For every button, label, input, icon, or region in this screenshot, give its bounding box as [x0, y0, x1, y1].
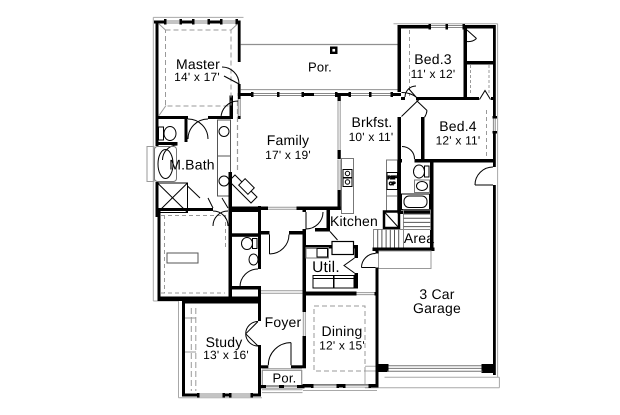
svg-text:Bed.4: Bed.4 [439, 118, 477, 134]
svg-text:11' x 12': 11' x 12' [411, 67, 456, 81]
svg-text:13' x 16': 13' x 16' [203, 348, 249, 362]
svg-text:OP: OP [389, 181, 396, 186]
svg-text:14' x 17': 14' x 17' [174, 70, 220, 84]
svg-text:Por.: Por. [273, 371, 297, 386]
svg-text:Garage: Garage [413, 300, 461, 316]
svg-text:17' x 19': 17' x 19' [265, 148, 311, 162]
svg-text:Util.: Util. [312, 259, 340, 276]
svg-text:Kitchen: Kitchen [330, 213, 378, 229]
svg-text:REF: REF [388, 175, 397, 180]
svg-text:M.Bath: M.Bath [169, 157, 215, 173]
svg-text:Brkfst.: Brkfst. [351, 114, 392, 130]
svg-text:12' x 11': 12' x 11' [436, 134, 481, 148]
svg-text:Bed.3: Bed.3 [414, 51, 452, 67]
svg-text:Por.: Por. [308, 60, 332, 75]
svg-text:12' x 15': 12' x 15' [319, 339, 365, 353]
svg-text:Foyer: Foyer [265, 314, 302, 330]
svg-text:10' x 11': 10' x 11' [349, 130, 394, 144]
svg-text:Area: Area [404, 230, 434, 246]
svg-text:Dining: Dining [322, 323, 363, 339]
svg-text:Family: Family [267, 132, 309, 148]
